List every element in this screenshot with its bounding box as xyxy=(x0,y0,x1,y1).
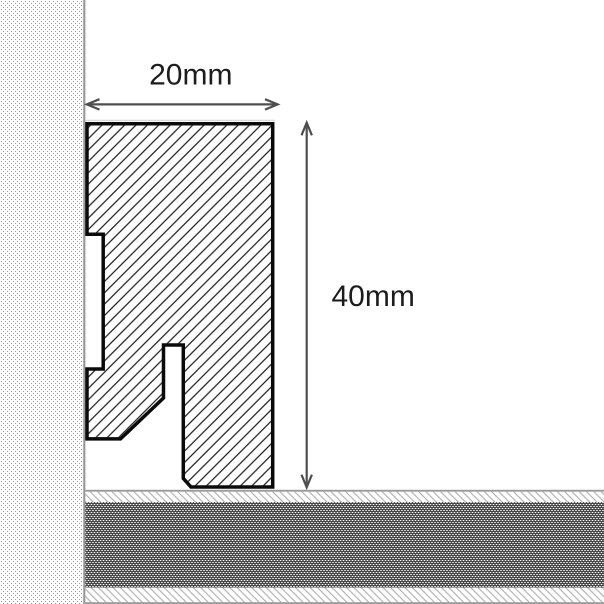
svg-text:20mm: 20mm xyxy=(149,59,232,92)
svg-text:40mm: 40mm xyxy=(332,280,415,313)
